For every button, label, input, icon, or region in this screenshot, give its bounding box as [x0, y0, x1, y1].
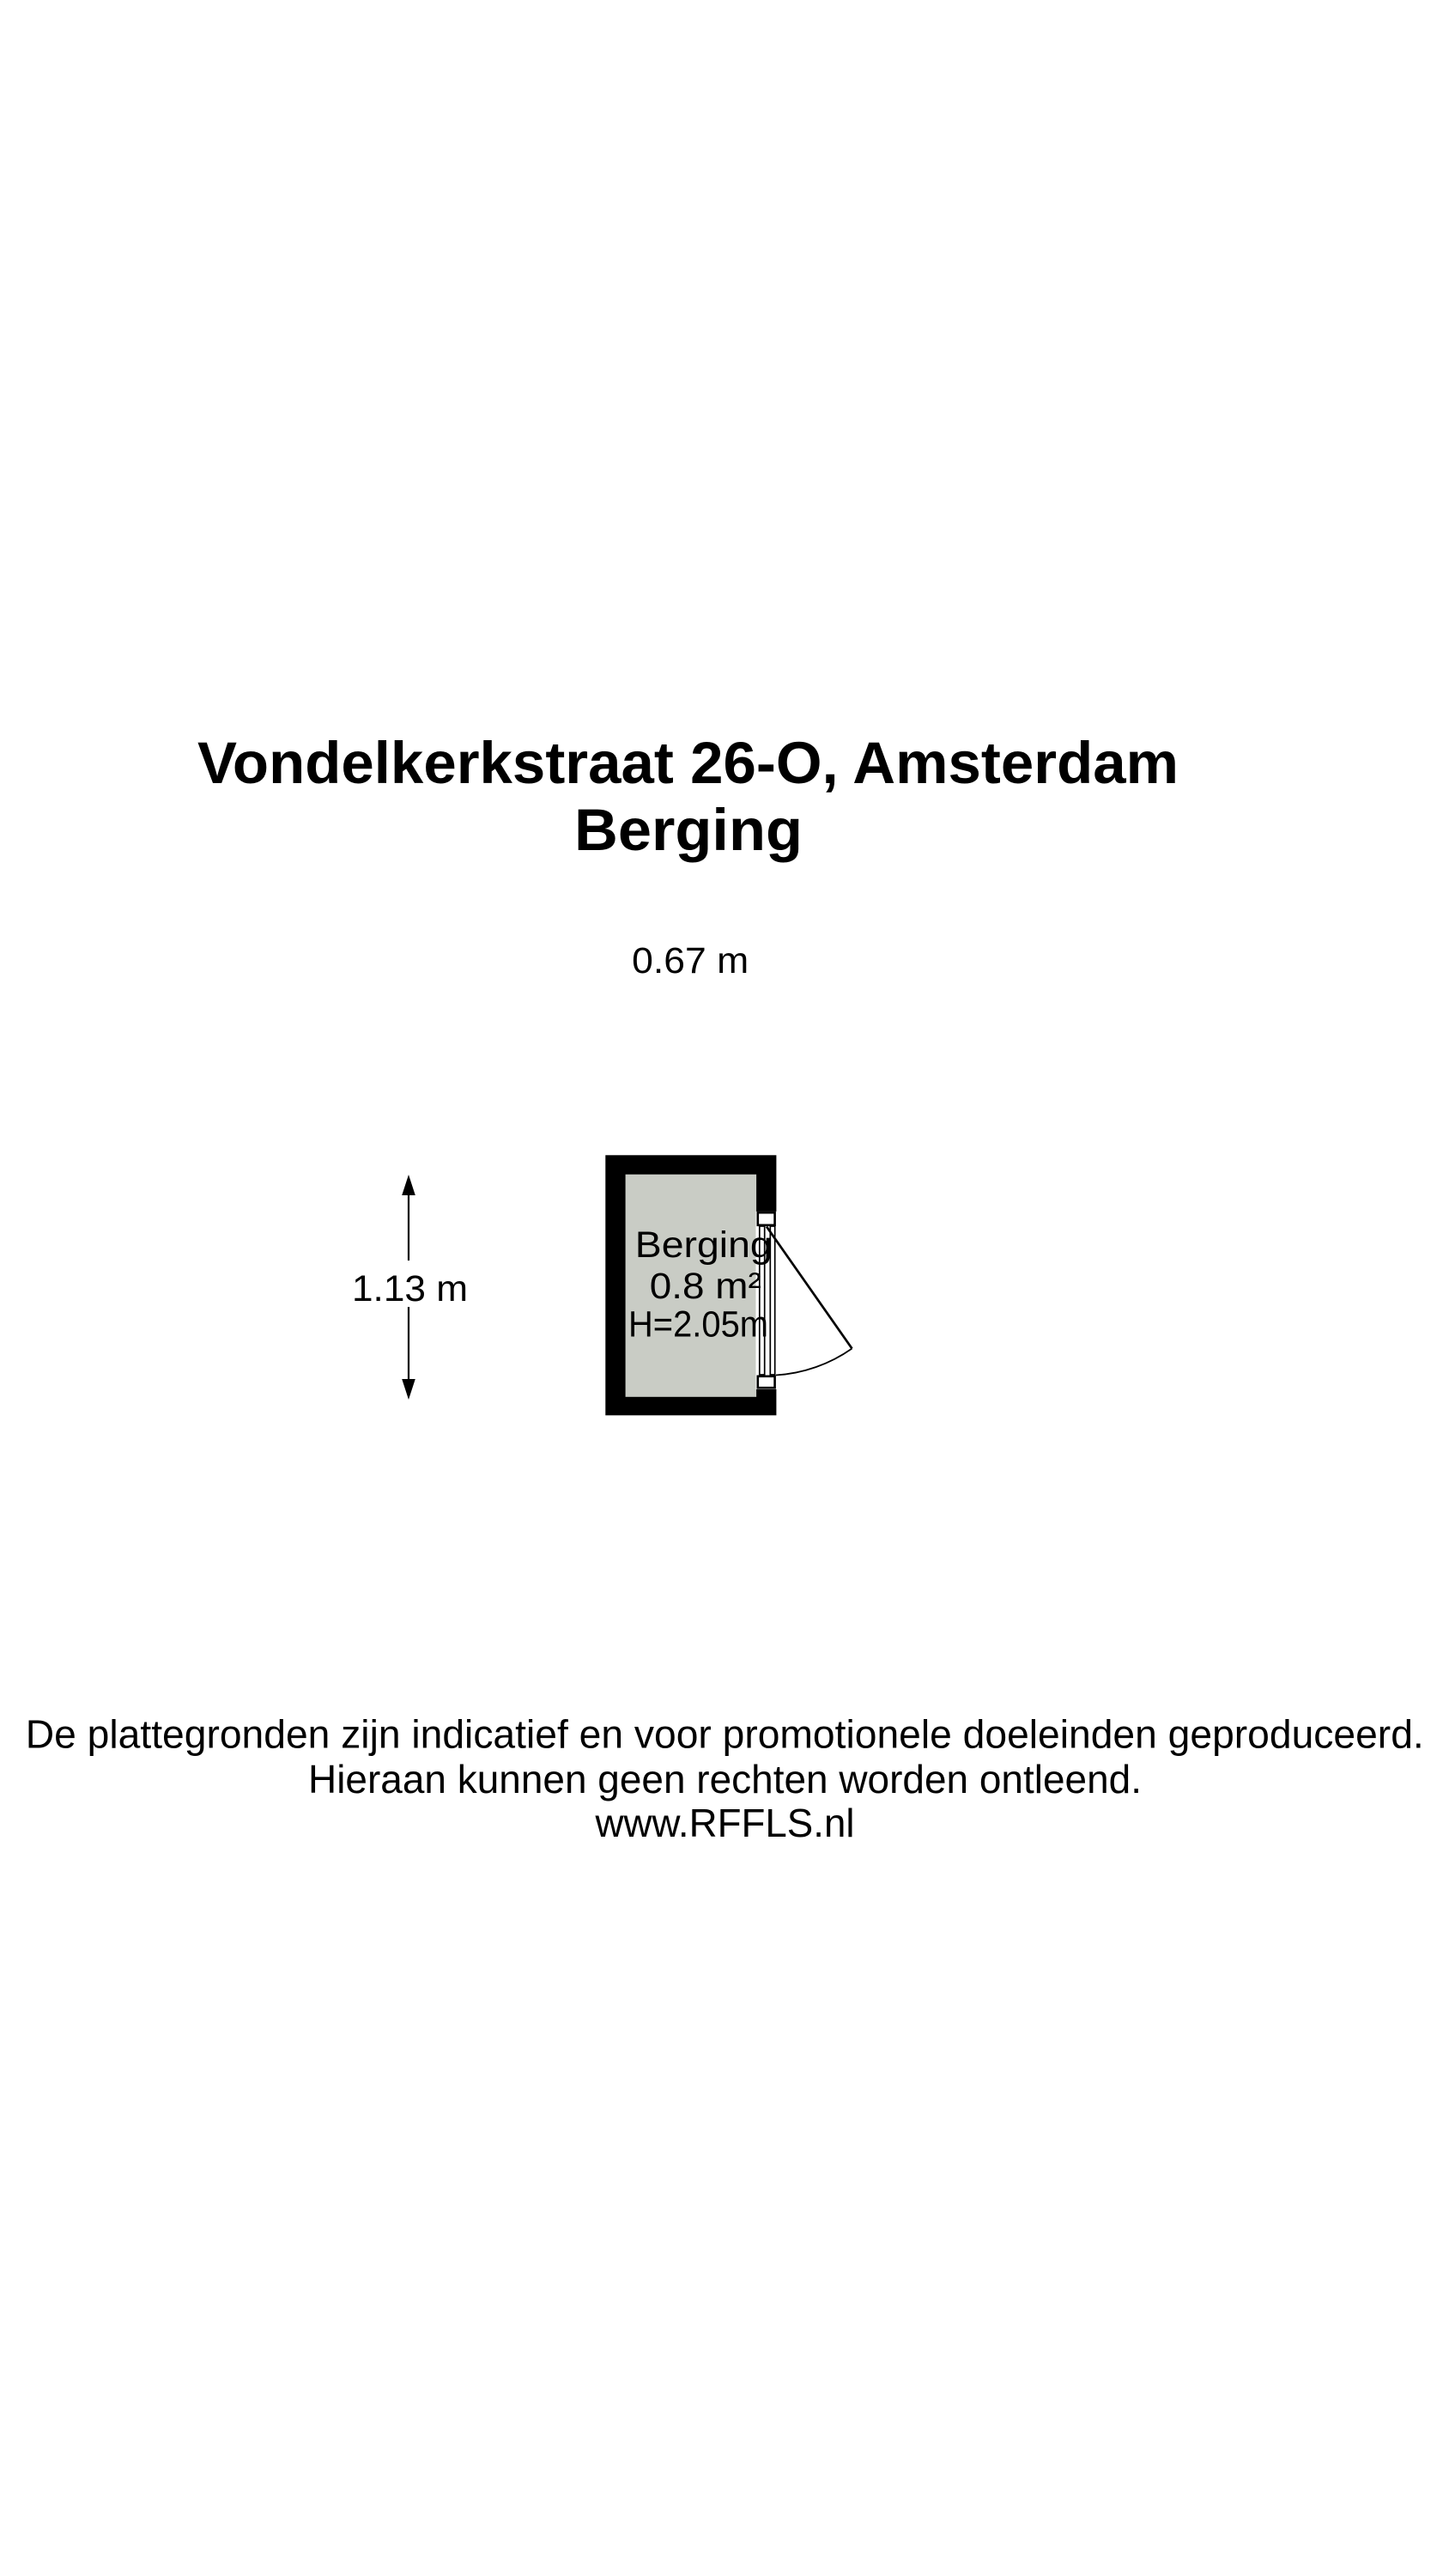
svg-text:1.13 m: 1.13 m	[352, 1268, 468, 1309]
svg-text:Berging: Berging	[574, 797, 803, 863]
svg-text:Vondelkerkstraat 26-O, Amsterd: Vondelkerkstraat 26-O, Amsterdam	[197, 730, 1179, 796]
svg-text:Berging: Berging	[635, 1224, 773, 1266]
svg-text:www.RFFLS.nl: www.RFFLS.nl	[595, 1801, 855, 1845]
svg-text:Hieraan kunnen geen rechten wo: Hieraan kunnen geen rechten worden ontle…	[308, 1757, 1142, 1801]
svg-text:0.8 m²: 0.8 m²	[650, 1266, 761, 1307]
svg-text:De plattegronden zijn indicati: De plattegronden zijn indicatief en voor…	[26, 1712, 1424, 1757]
svg-text:0.67 m: 0.67 m	[632, 940, 749, 981]
svg-text:H=2.05m: H=2.05m	[628, 1304, 768, 1346]
